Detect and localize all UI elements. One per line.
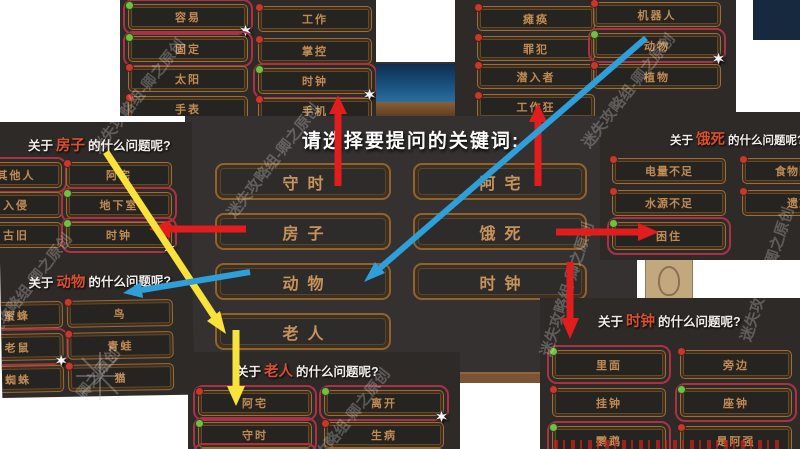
option-button[interactable]: 座钟: [680, 388, 792, 417]
status-dot: [125, 33, 134, 42]
starving-question-panel: 关于饿死的什么问题呢? 电量不足 水源不足 困住 食物匮乏 遗忘: [600, 112, 800, 260]
option-label: 困住: [656, 228, 682, 244]
background-picture: [374, 64, 456, 102]
keyword-label: 阿宅: [479, 170, 529, 194]
keyword-button-fangzi[interactable]: 房子: [215, 213, 391, 250]
option-label: 时钟: [106, 227, 132, 243]
status-dot: [609, 155, 618, 164]
keyword-button-shoushi[interactable]: 守时: [215, 163, 391, 200]
status-dot: [474, 33, 483, 42]
top-left-options-panel: 容易 固定 太阳 手表 工作 掌控 时钟 手机: [120, 0, 376, 116]
option-label: 入侵: [3, 197, 29, 213]
option-label: 水源不足: [645, 195, 693, 211]
option-label: 蜘蛛: [5, 371, 31, 387]
option-button[interactable]: 蜘蛛: [0, 365, 64, 394]
status-dot: [549, 423, 558, 432]
option-button[interactable]: 老鼠: [0, 333, 64, 362]
option-button[interactable]: 太阳: [128, 66, 248, 92]
option-button[interactable]: 地下室: [66, 192, 172, 218]
option-label: 工作: [302, 11, 328, 27]
option-button[interactable]: 挂钟: [552, 388, 666, 417]
status-dot: [255, 95, 264, 104]
option-button[interactable]: 植物: [593, 64, 721, 89]
option-button[interactable]: 手机: [258, 98, 372, 116]
option-label: 食物匮乏: [775, 163, 800, 179]
option-label: 容易: [175, 9, 201, 25]
option-label: 阿宅: [242, 395, 268, 411]
status-dot: [590, 0, 599, 8]
keyword-button-esi[interactable]: 饿死: [413, 213, 587, 250]
oldman-question-panel: 关于老人的什么问题呢? 阿宅 守时 离开 生病: [188, 352, 460, 449]
option-label: 机器人: [638, 7, 677, 23]
option-button[interactable]: 固定: [128, 36, 248, 62]
option-button[interactable]: 水源不足: [612, 190, 726, 216]
status-dot: [65, 362, 74, 371]
option-button[interactable]: 潜入者: [477, 64, 595, 89]
option-button[interactable]: 守时: [198, 422, 312, 448]
cardboard-drawing: [658, 266, 680, 296]
option-button[interactable]: 瘫痪: [477, 6, 595, 31]
option-button[interactable]: 离开: [324, 390, 444, 416]
status-dot: [549, 385, 558, 394]
option-button[interactable]: 阿宅: [198, 390, 312, 416]
status-dot: [474, 91, 483, 100]
status-dot: [590, 61, 599, 70]
status-dot: [677, 423, 686, 432]
option-button[interactable]: 动物: [593, 33, 721, 58]
option-label: 猫: [114, 369, 127, 385]
house-question-panel: 关于房子的什么问题呢? 其他人 入侵 古旧 阿宅 地下室 时钟: [0, 122, 192, 262]
status-dot: [195, 387, 204, 396]
option-button[interactable]: 电量不足: [612, 158, 726, 184]
option-button[interactable]: 手表: [128, 96, 248, 116]
status-dot: [125, 63, 134, 72]
option-label: 旁边: [723, 357, 749, 373]
status-dot: [63, 159, 72, 168]
keyword-button-laoren[interactable]: 老人: [215, 313, 391, 350]
option-label: 太阳: [175, 71, 201, 87]
option-button[interactable]: 里面: [552, 350, 666, 379]
option-label: 瘫痪: [523, 11, 549, 27]
panel-question-title: 关于饿死的什么问题呢?: [670, 128, 800, 149]
option-label: 潜入者: [517, 69, 556, 85]
keyword-label: 动物: [282, 270, 332, 294]
status-dot: [590, 30, 599, 39]
panel-question-title: 关于老人的什么问题呢?: [236, 360, 379, 381]
option-label: 工作狂: [517, 99, 556, 115]
option-button[interactable]: 时钟: [258, 68, 372, 94]
option-button[interactable]: 旁边: [680, 350, 792, 379]
keyword-label: 饿死: [479, 220, 529, 244]
option-label: 鸟: [113, 305, 126, 321]
option-button[interactable]: 遗忘: [742, 190, 800, 216]
status-dot: [63, 219, 72, 228]
status-dot: [474, 3, 483, 12]
option-label: 其他人: [0, 167, 36, 183]
option-label: 古旧: [3, 227, 29, 243]
walkthrough-collage: 请选择要提问的关键词: 守时 房子 动物 老人 阿宅 饿死 时钟 容易 固定 太…: [0, 0, 800, 449]
option-button[interactable]: 罪犯: [477, 36, 595, 61]
clock-question-panel: 关于时钟的什么问题呢? 里面 挂钟 鹦鹉 旁边 座钟 是阿强: [540, 298, 800, 449]
status-dot: [321, 419, 330, 428]
option-button[interactable]: 机器人: [593, 2, 721, 27]
option-label: 阿宅: [106, 167, 132, 183]
panel-question-title: 关于动物的什么问题呢?: [28, 269, 171, 292]
option-label: 掌控: [302, 43, 328, 59]
status-dot: [474, 61, 483, 70]
option-label: 蜜蜂: [4, 307, 30, 323]
option-label: 守时: [242, 427, 268, 443]
option-button[interactable]: 容易: [128, 4, 248, 30]
keyword-label: 房子: [282, 220, 332, 244]
option-label: 固定: [175, 41, 201, 57]
status-dot: [255, 3, 264, 12]
option-button[interactable]: 生病: [324, 422, 444, 448]
keyword-label: 守时: [282, 170, 332, 194]
status-dot: [321, 387, 330, 396]
cutoff-red-text: [554, 440, 782, 449]
board-title: 请选择要提问的关键词:: [185, 126, 637, 153]
click-burst-icon: [163, 242, 176, 255]
option-label: 遗忘: [787, 195, 800, 211]
option-button[interactable]: 工作狂: [477, 94, 595, 116]
status-dot: [63, 189, 72, 198]
option-label: 里面: [596, 357, 622, 373]
status-dot: [195, 419, 204, 428]
option-button[interactable]: 掌控: [258, 38, 372, 64]
status-dot: [64, 298, 73, 307]
option-label: 动物: [644, 38, 670, 54]
status-dot: [64, 330, 73, 339]
status-dot: [739, 187, 748, 196]
option-button[interactable]: 青蛙: [67, 331, 173, 360]
status-dot: [609, 219, 618, 228]
keyword-button-dongwu[interactable]: 动物: [215, 263, 391, 300]
option-button[interactable]: 古旧: [0, 222, 62, 248]
keyword-label: 时钟: [479, 270, 529, 294]
option-button[interactable]: 其他人: [0, 162, 62, 188]
option-label: 时钟: [302, 73, 328, 89]
option-label: 手表: [175, 101, 201, 116]
status-dot: [255, 65, 264, 74]
status-dot: [125, 93, 134, 102]
keyword-button-shizhong[interactable]: 时钟: [413, 263, 587, 300]
option-button[interactable]: 鸟: [67, 299, 173, 328]
option-button[interactable]: 入侵: [0, 192, 62, 218]
status-dot: [255, 35, 264, 44]
status-dot: [677, 385, 686, 394]
option-label: 电量不足: [645, 163, 693, 179]
option-label: 手机: [302, 103, 328, 116]
option-label: 老鼠: [4, 339, 30, 355]
option-label: 生病: [371, 427, 397, 443]
animal-question-panel: 关于动物的什么问题呢? 蜜蜂 老鼠 蜘蛛 鸟 青蛙 猫: [0, 259, 194, 398]
status-dot: [125, 1, 134, 10]
corner-screenshot-fragment: [753, 0, 800, 40]
panel-question-title: 关于房子的什么问题呢?: [28, 134, 171, 155]
option-button[interactable]: 工作: [258, 6, 372, 32]
background-shelf: [367, 102, 463, 116]
keyword-button-azhai[interactable]: 阿宅: [413, 163, 587, 200]
option-label: 座钟: [723, 395, 749, 411]
option-label: 罪犯: [523, 41, 549, 57]
status-dot: [677, 347, 686, 356]
option-button[interactable]: 时钟: [66, 222, 172, 248]
option-label: 青蛙: [107, 337, 133, 353]
option-label: 地下室: [100, 197, 139, 213]
top-right-options-panel: 瘫痪 罪犯 潜入者 工作狂 机器人 动物 植物: [455, 0, 736, 116]
status-dot: [549, 347, 558, 356]
option-button[interactable]: 食物匮乏: [742, 158, 800, 184]
option-button[interactable]: 猫: [68, 363, 174, 392]
option-button[interactable]: 蜜蜂: [0, 301, 63, 330]
option-label: 离开: [371, 395, 397, 411]
panel-question-title: 关于时钟的什么问题呢?: [598, 310, 741, 331]
option-button[interactable]: 困住: [612, 222, 726, 250]
option-button[interactable]: 阿宅: [66, 162, 172, 188]
status-dot: [609, 187, 618, 196]
keyword-label: 老人: [282, 320, 332, 344]
option-label: 挂钟: [596, 395, 622, 411]
option-label: 植物: [644, 69, 670, 85]
status-dot: [739, 155, 748, 164]
